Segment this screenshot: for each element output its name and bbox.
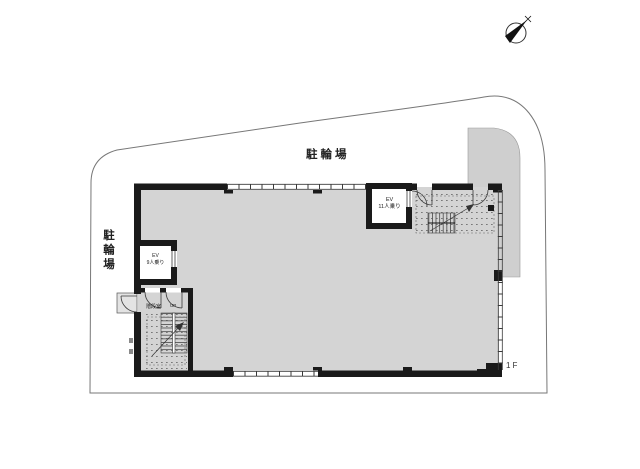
entrance-canopy	[117, 293, 137, 313]
window-wall-top	[227, 184, 366, 191]
label-elevator-left: EV 9人乗り	[139, 253, 172, 266]
window-wall-bottom	[233, 371, 318, 378]
elevator-left-line2: 9人乗り	[139, 260, 172, 267]
floorplan-drawing	[0, 0, 640, 469]
left-wall-fixtures	[129, 338, 133, 354]
label-stair-room: 階段室	[146, 303, 161, 310]
stairwell-top-right	[414, 190, 496, 235]
floorplan-canvas: 駐輪場 駐輪場 EV 9人乗り EV 11人乗り 階段室 UP 1F	[0, 0, 640, 469]
label-elevator-right: EV 11人乗り	[371, 197, 408, 211]
label-stair-up: UP	[170, 303, 176, 308]
elevator-right-line2: 11人乗り	[371, 204, 408, 211]
label-bike-parking-top: 駐輪場	[306, 146, 350, 162]
label-floor-number: 1F	[506, 361, 519, 370]
north-arrow-icon	[505, 16, 531, 43]
elevator-right-line1: EV	[371, 197, 408, 204]
label-bike-parking-left: 駐輪場	[100, 229, 116, 273]
